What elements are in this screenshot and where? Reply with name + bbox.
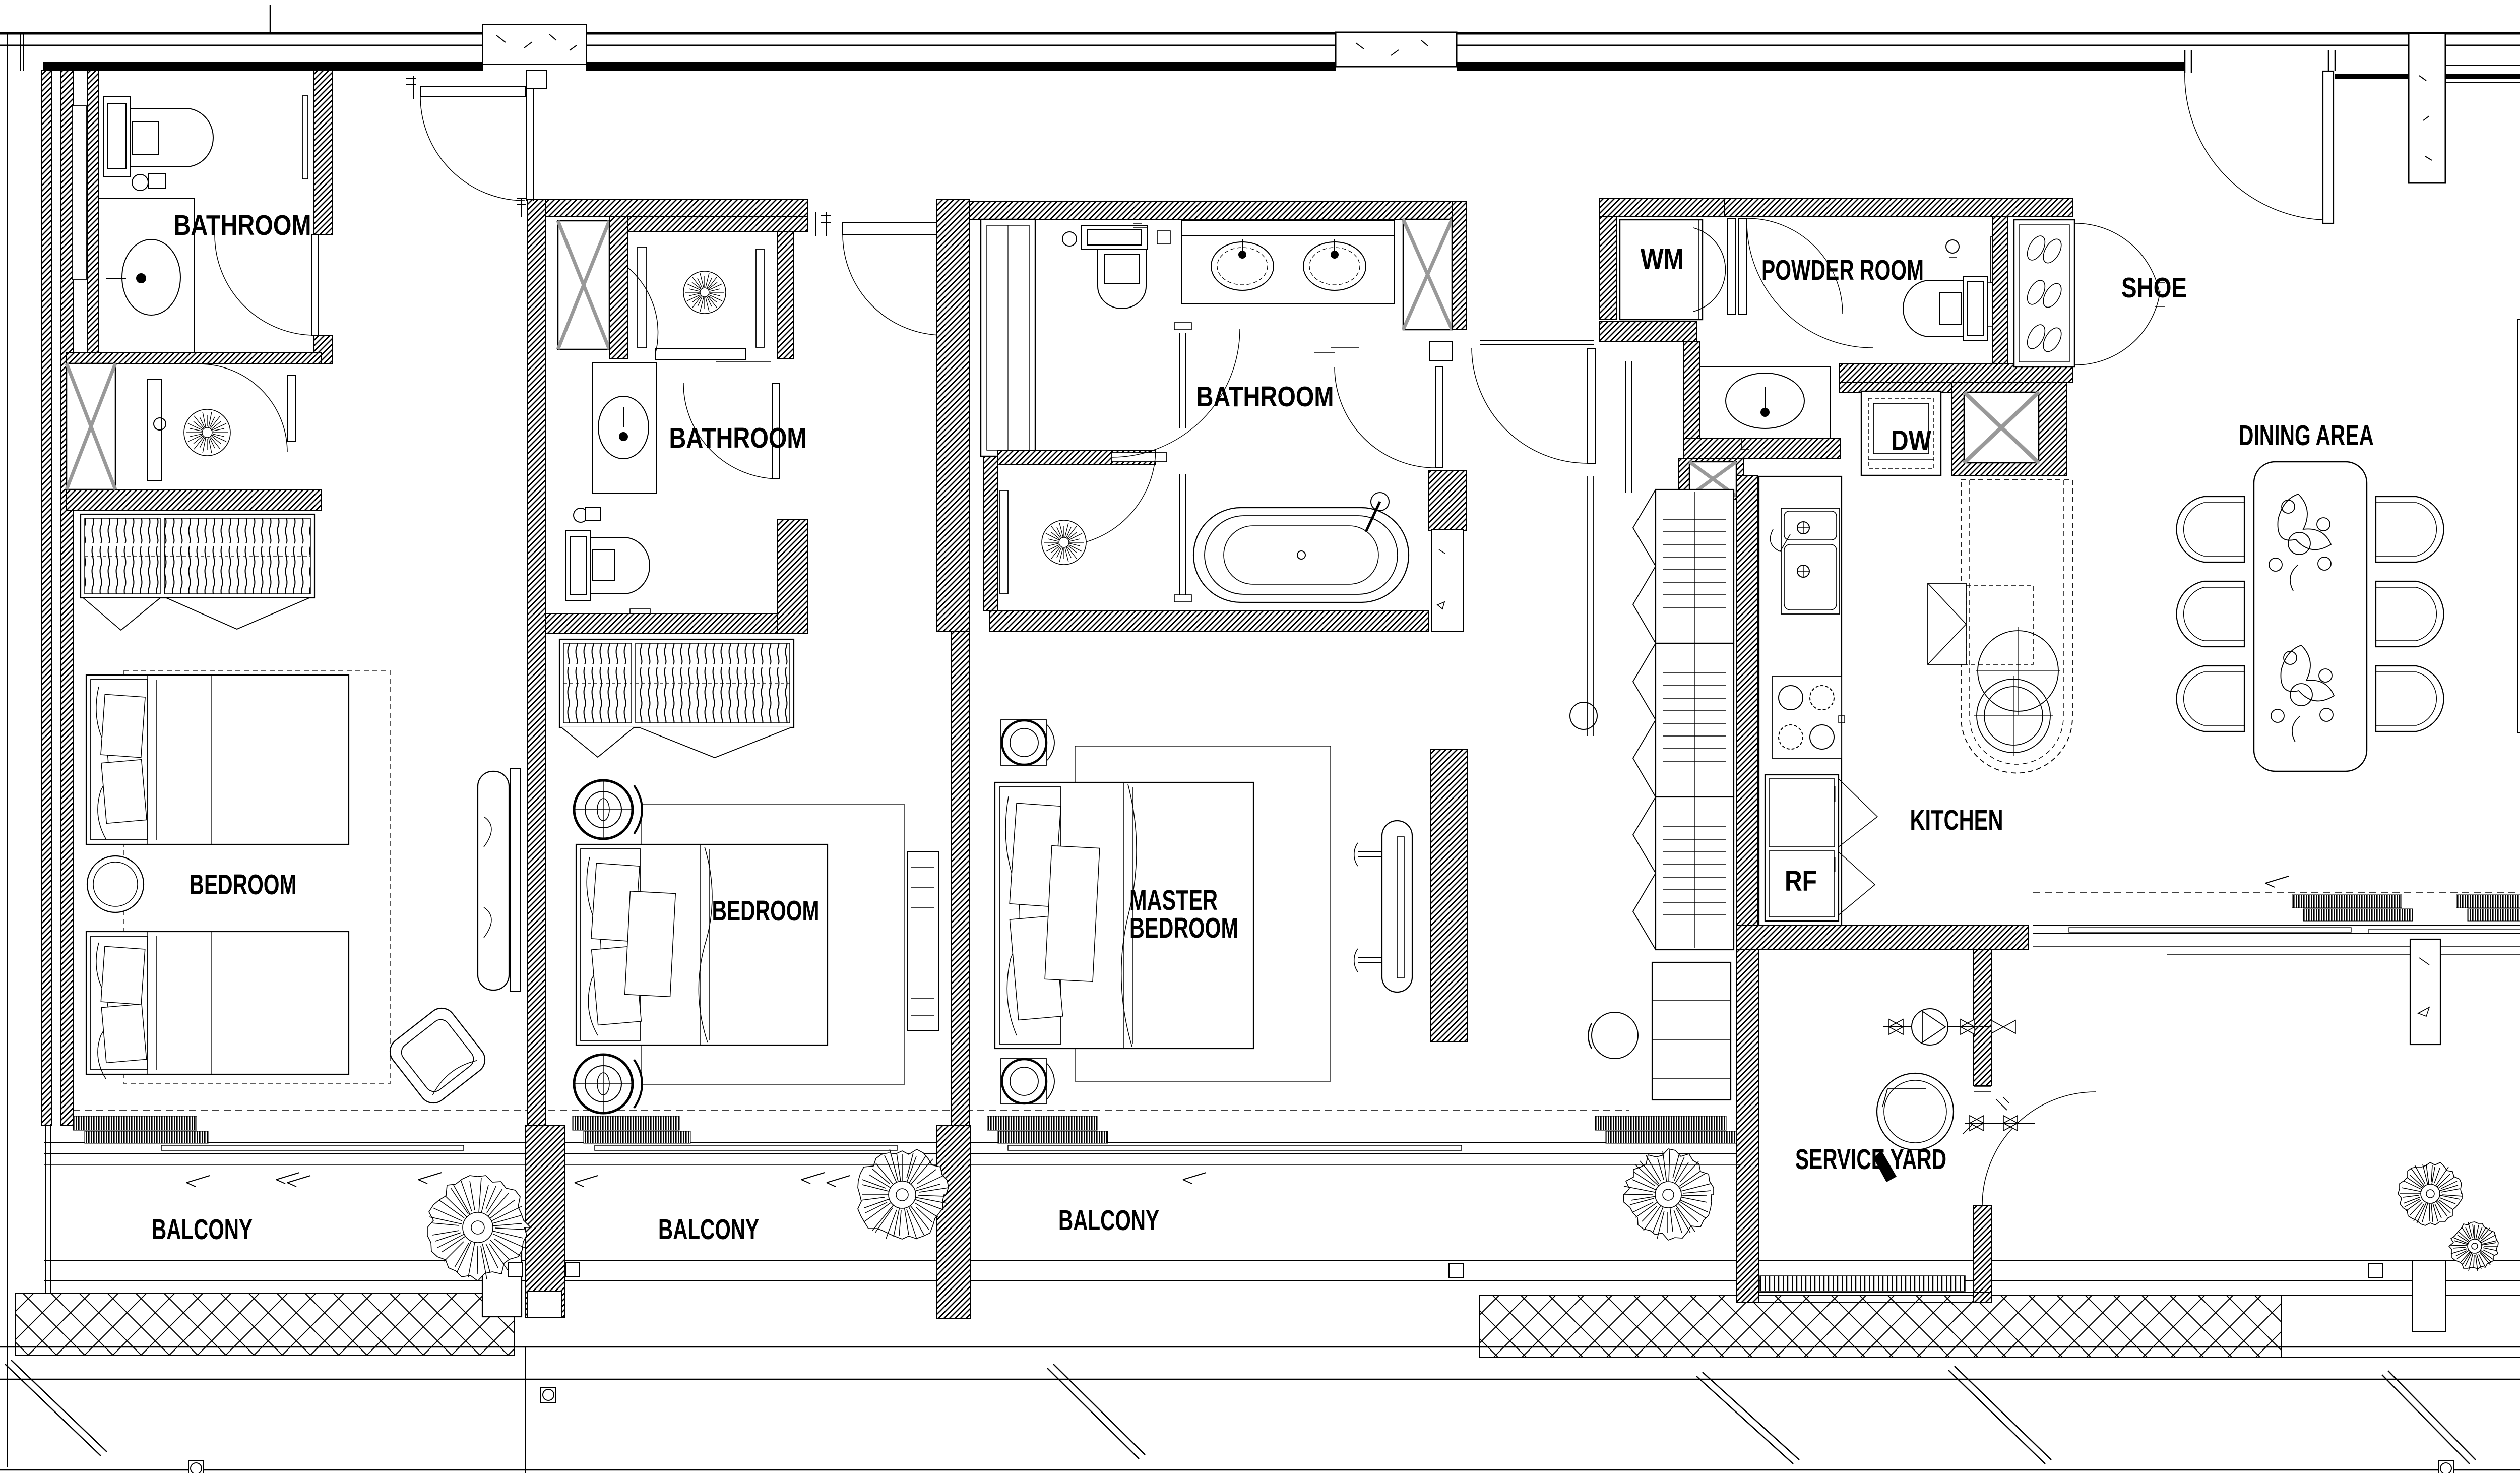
svg-text:SHOE: SHOE	[2121, 272, 2187, 304]
svg-text:BALCONY: BALCONY	[1058, 1204, 1159, 1237]
svg-text:BATHROOM: BATHROOM	[174, 209, 311, 241]
svg-text:BATHROOM: BATHROOM	[669, 422, 807, 454]
svg-text:BEDROOM: BEDROOM	[190, 869, 297, 901]
svg-text:BATHROOM: BATHROOM	[1196, 381, 1334, 413]
svg-text:KITCHEN: KITCHEN	[1910, 804, 2003, 836]
svg-text:BEDROOM: BEDROOM	[712, 895, 820, 927]
svg-text:SERVICE YARD: SERVICE YARD	[1795, 1143, 1946, 1176]
svg-text:DW: DW	[1891, 424, 1931, 457]
svg-text:BALCONY: BALCONY	[152, 1213, 253, 1246]
svg-text:DINING AREA: DINING AREA	[2239, 419, 2374, 452]
svg-text:WM: WM	[1641, 243, 1684, 275]
svg-text:BALCONY: BALCONY	[658, 1213, 759, 1246]
svg-text:POWDER ROOM: POWDER ROOM	[1761, 254, 1924, 286]
svg-text:RF: RF	[1785, 865, 1817, 897]
svg-text:BEDROOM: BEDROOM	[1129, 912, 1238, 944]
